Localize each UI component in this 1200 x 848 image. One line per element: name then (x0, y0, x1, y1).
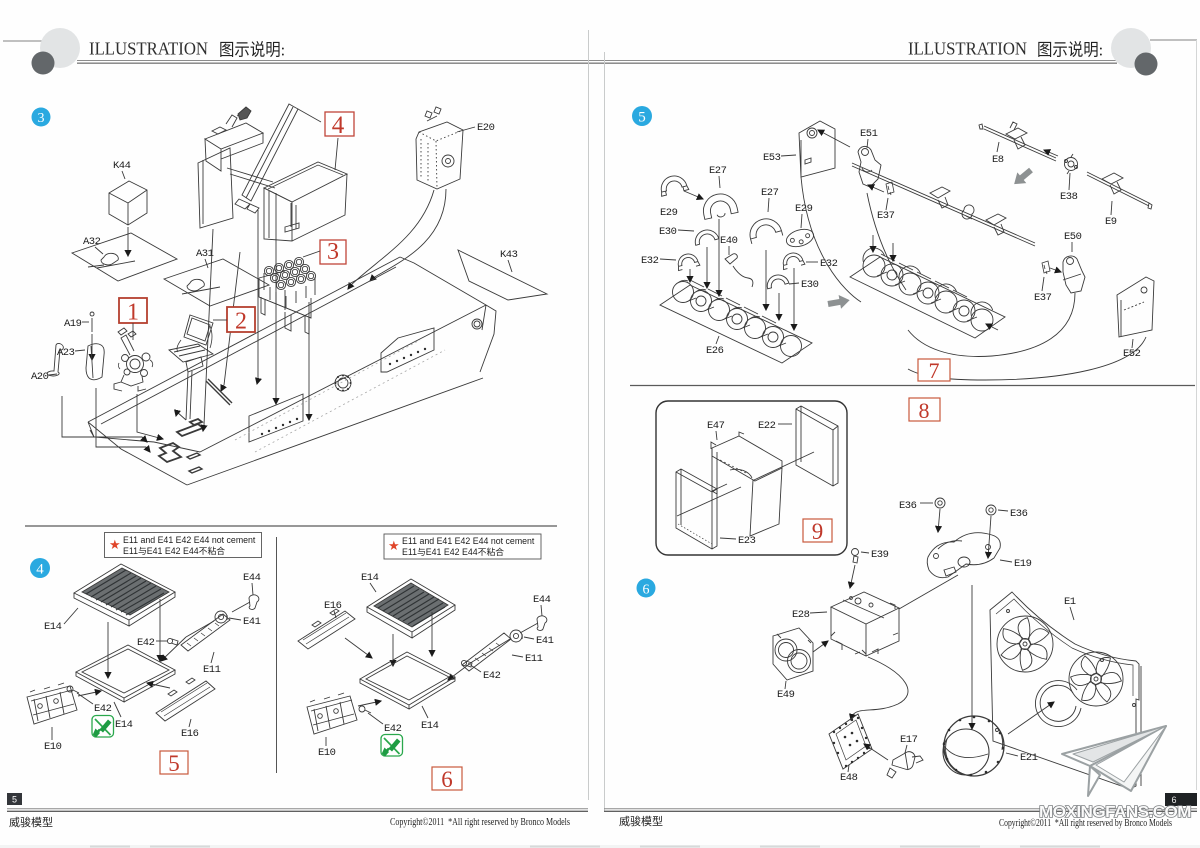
svg-text:A31: A31 (196, 248, 214, 260)
svg-text:E53: E53 (763, 152, 781, 164)
svg-text:E22: E22 (758, 420, 776, 432)
svg-text:6: 6 (643, 583, 650, 598)
svg-text:图示说明:: 图示说明: (1037, 41, 1103, 60)
svg-text:K44: K44 (113, 160, 131, 172)
svg-text:E41: E41 (536, 635, 554, 647)
svg-text:威骏模型: 威骏模型 (9, 815, 53, 829)
svg-text:威骏模型: 威骏模型 (619, 814, 663, 828)
svg-text:E9: E9 (1105, 216, 1117, 228)
svg-text:E11与E41 E42 E44不粘合: E11与E41 E42 E44不粘合 (402, 546, 504, 557)
svg-text:E42: E42 (483, 670, 501, 682)
svg-text:E17: E17 (900, 734, 918, 746)
svg-text:E10: E10 (44, 741, 62, 753)
svg-text:E14: E14 (361, 572, 379, 584)
svg-text:A20: A20 (31, 371, 49, 383)
svg-text:E42: E42 (384, 723, 402, 735)
svg-text:E37: E37 (877, 210, 895, 222)
svg-text:6: 6 (441, 767, 453, 792)
svg-text:8: 8 (919, 398, 930, 423)
svg-text:E28: E28 (792, 609, 810, 621)
svg-text:A19: A19 (64, 318, 82, 330)
svg-text:4: 4 (332, 112, 345, 139)
svg-text:E27: E27 (761, 187, 779, 199)
svg-text:E40: E40 (720, 235, 738, 247)
svg-text:E19: E19 (1014, 558, 1032, 570)
svg-text:E52: E52 (1123, 348, 1141, 360)
svg-text:★: ★ (109, 537, 121, 552)
svg-text:E10: E10 (318, 747, 336, 759)
svg-text:E14: E14 (115, 719, 133, 731)
svg-text:E41: E41 (243, 616, 261, 628)
svg-text:E23: E23 (738, 535, 756, 547)
svg-text:ILLUSTRATION: ILLUSTRATION (908, 39, 1027, 59)
svg-text:图示说明:: 图示说明: (219, 41, 285, 60)
svg-text:E29: E29 (660, 207, 678, 219)
svg-text:E47: E47 (707, 420, 725, 432)
svg-text:1: 1 (127, 300, 139, 326)
svg-text:E51: E51 (860, 128, 878, 140)
svg-text:7: 7 (929, 358, 940, 383)
svg-text:E11 and E41 E42 E44 not cement: E11 and E41 E42 E44 not cement (402, 536, 535, 546)
svg-text:E14: E14 (421, 720, 439, 732)
svg-text:E16: E16 (324, 600, 342, 612)
svg-text:E27: E27 (709, 165, 727, 177)
svg-text:E37: E37 (1034, 292, 1052, 304)
svg-text:E16: E16 (181, 728, 199, 740)
svg-text:E42: E42 (137, 637, 155, 649)
svg-text:Copyright©2011 *All right res: Copyright©2011 *All right reserved by Br… (390, 817, 570, 828)
svg-text:E26: E26 (706, 345, 724, 357)
svg-text:E38: E38 (1060, 191, 1078, 203)
svg-text:5: 5 (638, 110, 646, 126)
svg-text:5: 5 (12, 795, 17, 805)
svg-text:E44: E44 (243, 572, 261, 584)
svg-text:2: 2 (235, 309, 247, 335)
svg-text:E29: E29 (795, 203, 813, 215)
svg-text:E49: E49 (777, 689, 795, 701)
svg-text:E1: E1 (1064, 596, 1076, 608)
svg-text:E50: E50 (1064, 231, 1082, 243)
svg-text:E11 and E41 E42 E44 not cement: E11 and E41 E42 E44 not cement (123, 535, 256, 545)
svg-text:E36: E36 (1010, 508, 1028, 520)
svg-text:E11: E11 (525, 653, 543, 665)
svg-text:E14: E14 (44, 621, 62, 633)
svg-text:E32: E32 (820, 258, 838, 270)
svg-text:E48: E48 (840, 772, 858, 784)
svg-text:5: 5 (168, 751, 180, 776)
svg-text:E11: E11 (203, 664, 221, 676)
svg-text:★: ★ (388, 538, 400, 553)
svg-text:E32: E32 (641, 255, 659, 267)
svg-text:MOXINGFANS.COM: MOXINGFANS.COM (1039, 804, 1191, 821)
svg-text:E20: E20 (477, 122, 495, 134)
svg-text:4: 4 (36, 562, 44, 578)
svg-text:E11与E41 E42 E44不粘合: E11与E41 E42 E44不粘合 (123, 545, 225, 556)
svg-text:E36: E36 (899, 500, 917, 512)
svg-text:E30: E30 (801, 279, 819, 291)
svg-text:E30: E30 (659, 226, 677, 238)
svg-text:E39: E39 (871, 549, 889, 561)
svg-text:9: 9 (812, 519, 824, 544)
svg-text:K43: K43 (500, 249, 518, 261)
svg-text:E44: E44 (533, 594, 551, 606)
svg-text:E42: E42 (94, 703, 112, 715)
svg-text:3: 3 (38, 111, 45, 126)
svg-text:ILLUSTRATION: ILLUSTRATION (89, 39, 208, 59)
svg-text:3: 3 (327, 239, 339, 265)
svg-text:E8: E8 (992, 154, 1004, 166)
